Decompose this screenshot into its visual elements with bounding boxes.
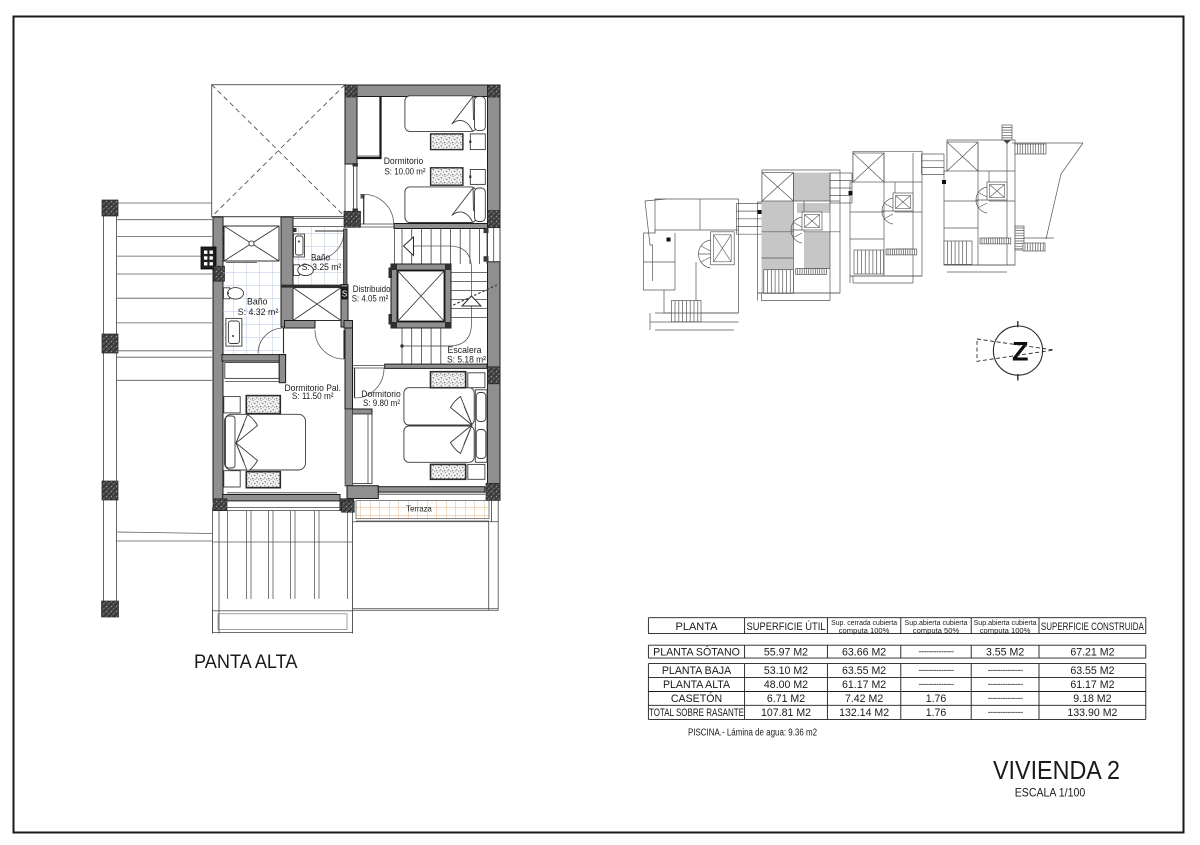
- svg-text:63.55 M2: 63.55 M2: [842, 665, 886, 677]
- svg-text:7.42 M2: 7.42 M2: [845, 693, 883, 705]
- svg-text:55.97 M2: 55.97 M2: [764, 647, 808, 659]
- svg-text:PLANTA: PLANTA: [676, 621, 719, 633]
- svg-text:9.18 M2: 9.18 M2: [1073, 693, 1111, 705]
- svg-text:CASETÓN: CASETÓN: [671, 692, 722, 705]
- svg-text:61.17 M2: 61.17 M2: [1070, 679, 1114, 691]
- svg-text:--------------: --------------: [988, 679, 1023, 689]
- svg-text:computa 50%: computa 50%: [913, 626, 960, 635]
- svg-text:--------------: --------------: [919, 679, 954, 689]
- svg-text:1.76: 1.76: [926, 707, 947, 719]
- svg-text:--------------: --------------: [988, 693, 1023, 703]
- svg-text:61.17 M2: 61.17 M2: [842, 679, 886, 691]
- svg-text:S: 11.50 m²: S: 11.50 m²: [292, 391, 334, 402]
- svg-text:Baño: Baño: [311, 253, 330, 263]
- svg-text:Distribuidor: Distribuidor: [353, 284, 394, 294]
- svg-text:3.55 M2: 3.55 M2: [986, 647, 1024, 659]
- svg-text:63.66 M2: 63.66 M2: [842, 647, 886, 659]
- svg-text:107.81 M2: 107.81 M2: [761, 707, 811, 719]
- svg-text:132.14 M2: 132.14 M2: [839, 707, 889, 719]
- svg-text:S: 9.80 m²: S: 9.80 m²: [363, 398, 401, 409]
- svg-text:Baño: Baño: [247, 297, 268, 308]
- svg-text:S: 4.32 m²: S: 4.32 m²: [238, 307, 279, 318]
- svg-text:--------------: --------------: [988, 707, 1023, 717]
- svg-text:VIVIENDA 2: VIVIENDA 2: [993, 757, 1120, 785]
- svg-text:--------------: --------------: [919, 665, 954, 675]
- svg-text:S: 4.05 m²: S: 4.05 m²: [352, 294, 389, 304]
- svg-text:48.00 M2: 48.00 M2: [764, 679, 808, 691]
- svg-text:S: 10.00 m²: S: 10.00 m²: [385, 167, 427, 178]
- svg-text:S: 3.25 m²: S: 3.25 m²: [302, 262, 342, 272]
- svg-text:Z: Z: [1012, 336, 1029, 366]
- svg-text:--------------: --------------: [988, 665, 1023, 675]
- svg-text:SUPERFICIE ÚTIL: SUPERFICIE ÚTIL: [747, 620, 826, 633]
- svg-text:S: 5.18 m²: S: 5.18 m²: [447, 355, 486, 365]
- svg-text:PLANTA SÓTANO: PLANTA SÓTANO: [653, 646, 740, 659]
- svg-text:ESCALA 1/100: ESCALA 1/100: [1015, 786, 1086, 800]
- svg-text:53.10 M2: 53.10 M2: [764, 665, 808, 677]
- svg-text:TOTAL SOBRE RASANTE: TOTAL SOBRE RASANTE: [649, 707, 744, 719]
- svg-text:computa 100%: computa 100%: [839, 626, 890, 635]
- svg-text:67.21 M2: 67.21 M2: [1070, 647, 1114, 659]
- svg-text:Dormitorio: Dormitorio: [384, 156, 424, 167]
- svg-text:S: S: [342, 290, 347, 299]
- svg-text:Terraza: Terraza: [406, 503, 432, 513]
- svg-text:Escalera: Escalera: [448, 345, 483, 355]
- svg-text:6.71 M2: 6.71 M2: [767, 693, 805, 705]
- svg-text:computa 100%: computa 100%: [980, 626, 1031, 635]
- svg-text:PANTA ALTA: PANTA ALTA: [194, 652, 298, 673]
- svg-text:PLANTA BAJA: PLANTA BAJA: [662, 665, 732, 677]
- svg-text:SUPERFICIE CONSTRUIDA: SUPERFICIE CONSTRUIDA: [1041, 621, 1144, 633]
- svg-text:PLANTA ALTA: PLANTA ALTA: [663, 679, 731, 691]
- svg-text:63.55 M2: 63.55 M2: [1070, 665, 1114, 677]
- svg-text:1.76: 1.76: [926, 693, 947, 705]
- svg-text:PISCINA.- Lámina de agua: 9.36: PISCINA.- Lámina de agua: 9.36 m2: [688, 728, 817, 739]
- svg-text:--------------: --------------: [919, 647, 954, 657]
- svg-text:133.90 M2: 133.90 M2: [1067, 707, 1117, 719]
